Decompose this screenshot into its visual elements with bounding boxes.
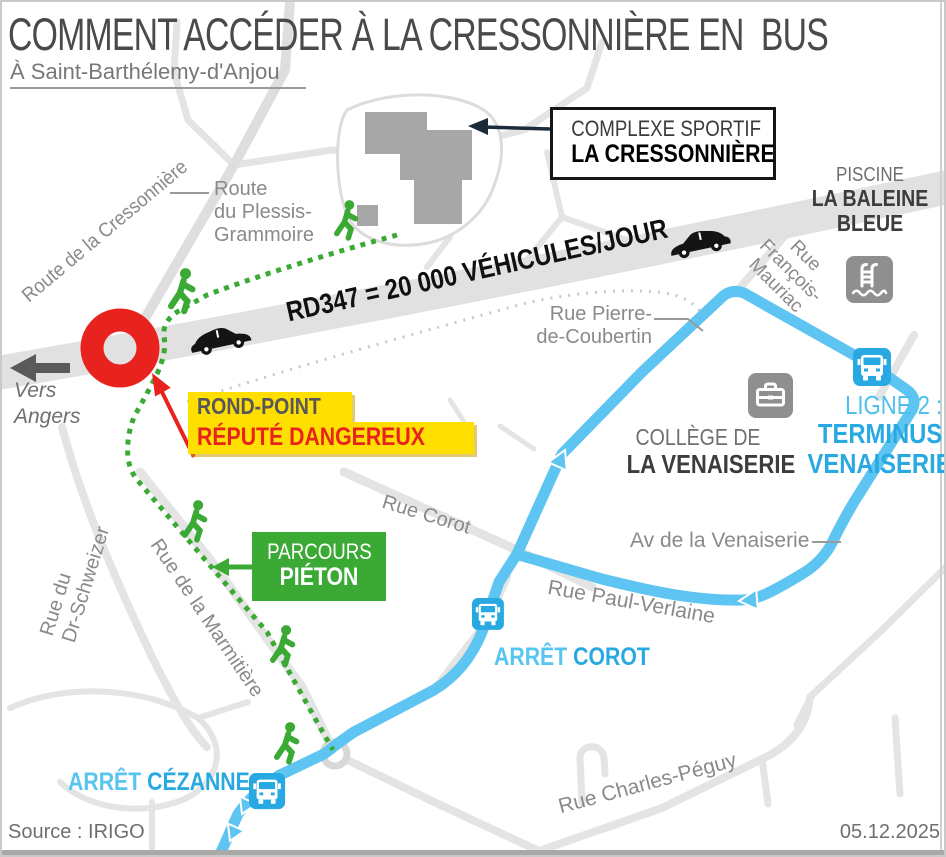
page-title: COMMENT ACCÉDER À LA CRESSONNIÈRE EN BUS — [8, 10, 946, 60]
complexe-callout: COMPLEXE SPORTIF LA CRESSONNIÈRE — [550, 107, 776, 180]
college-label: COLLÈGE DE LA VENAISERIE — [614, 425, 782, 479]
frame-bottom-bar — [2, 850, 946, 857]
arret-corot-name: COROT — [573, 643, 650, 671]
page-title-text: COMMENT ACCÉDER À LA CRESSONNIÈRE EN BUS — [8, 10, 828, 60]
college-line2: LA VENAISERIE — [627, 450, 770, 479]
arret-corot-label: ARRÊT COROT — [494, 644, 677, 672]
ligne2-line2: TERMINUS — [818, 419, 942, 449]
parcours-line2: PIÉTON — [267, 564, 371, 592]
infographic-map: COMMENT ACCÉDER À LA CRESSONNIÈRE EN BUS… — [0, 0, 946, 857]
ligne2-line3: VENAISERIE — [807, 449, 946, 479]
piscine-line1: PISCINE — [806, 164, 934, 186]
parcours-label: PARCOURS PIÉTON — [252, 532, 386, 601]
piscine-line3: BLEUE — [806, 211, 934, 236]
bus-stop-icon-corot — [472, 598, 504, 630]
piscine-line2: LA BALEINE — [806, 186, 934, 211]
complexe-line1: COMPLEXE SPORTIF — [571, 117, 755, 141]
vers-line1: Vers — [14, 378, 81, 404]
piscine-label: PISCINE LA BALEINE BLEUE — [795, 164, 945, 237]
street-coubertin-line1: Rue Pierre- — [526, 303, 652, 326]
street-coubertin: Rue Pierre- de-Coubertin — [526, 303, 652, 349]
street-plessis-line3: Grammoire — [214, 224, 314, 247]
complexe-line2: LA CRESSONNIÈRE — [571, 141, 755, 169]
street-plessis-line1: Route — [214, 178, 314, 201]
date-label: 05.12.2025 — [820, 821, 940, 843]
street-plessis-line2: du Plessis- — [214, 201, 314, 224]
pedestrian-icon-1 — [337, 200, 356, 238]
route-arrow-west — [739, 590, 758, 610]
rondpoint-warning: ROND-POINT RÉPUTÉ DANGEREUX — [188, 392, 474, 454]
parcours-line1: PARCOURS — [267, 540, 371, 564]
street-coubertin-line2: de-Coubertin — [526, 326, 652, 349]
street-av-venaiserie: Av de la Venaiserie — [630, 529, 809, 552]
ligne2-line1: LIGNE 2 : — [845, 391, 942, 419]
arret-corot-prefix: ARRÊT — [494, 643, 573, 671]
arret-cezanne-prefix: ARRÊT — [68, 768, 147, 796]
bus-stop-icon-terminus — [853, 348, 891, 386]
pedestrian-icon-5 — [277, 722, 297, 762]
college-line1: COLLÈGE DE — [627, 425, 770, 450]
rondpoint-line1: ROND-POINT — [197, 395, 321, 418]
vers-angers-label: Vers Angers — [14, 378, 81, 431]
page-subtitle: À Saint-Barthélemy-d'Anjou — [10, 60, 306, 89]
ligne2-label: LIGNE 2 : TERMINUS VENAISERIE — [782, 391, 942, 480]
page-subtitle-text: À Saint-Barthélemy-d'Anjou — [10, 60, 306, 89]
street-plessis: Route du Plessis- Grammoire — [214, 178, 314, 247]
source-label: Source : IRIGO — [8, 821, 145, 843]
rondpoint-line2: RÉPUTÉ DANGEREUX — [197, 425, 425, 450]
pool-icon — [846, 256, 893, 303]
arret-cezanne-label: ARRÊT CÉZANNE — [68, 769, 282, 797]
vers-line2: Angers — [14, 404, 81, 430]
arret-cezanne-name: CÉZANNE — [147, 768, 250, 796]
